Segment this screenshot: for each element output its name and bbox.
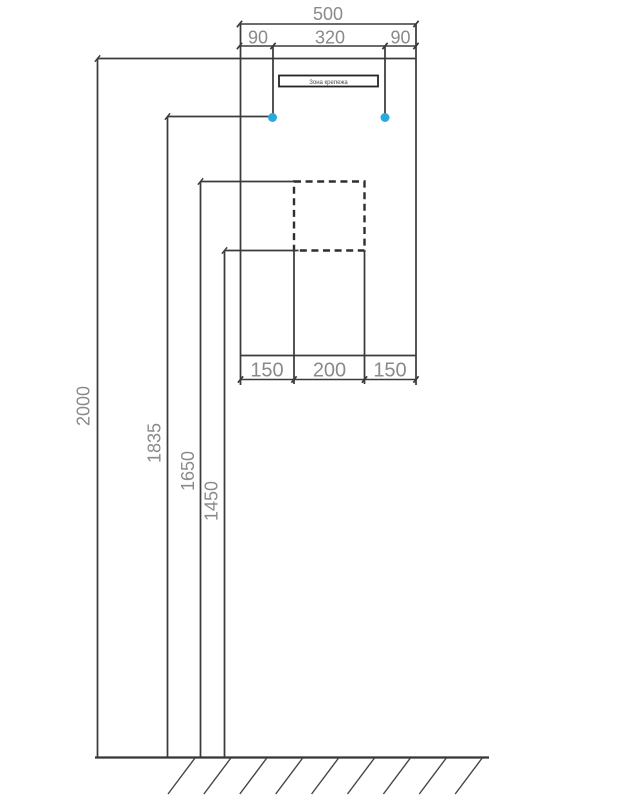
svg-text:1450: 1450 xyxy=(202,481,222,521)
svg-text:90: 90 xyxy=(390,28,410,48)
svg-text:Зона крепежа: Зона крепежа xyxy=(309,80,348,86)
svg-text:500: 500 xyxy=(313,4,343,24)
svg-text:320: 320 xyxy=(315,28,345,48)
svg-text:200: 200 xyxy=(313,360,346,382)
svg-text:150: 150 xyxy=(373,360,406,382)
svg-text:1835: 1835 xyxy=(145,423,165,463)
svg-text:90: 90 xyxy=(248,28,268,48)
svg-text:1650: 1650 xyxy=(178,451,198,491)
svg-text:2000: 2000 xyxy=(74,386,94,426)
svg-text:150: 150 xyxy=(250,360,283,382)
